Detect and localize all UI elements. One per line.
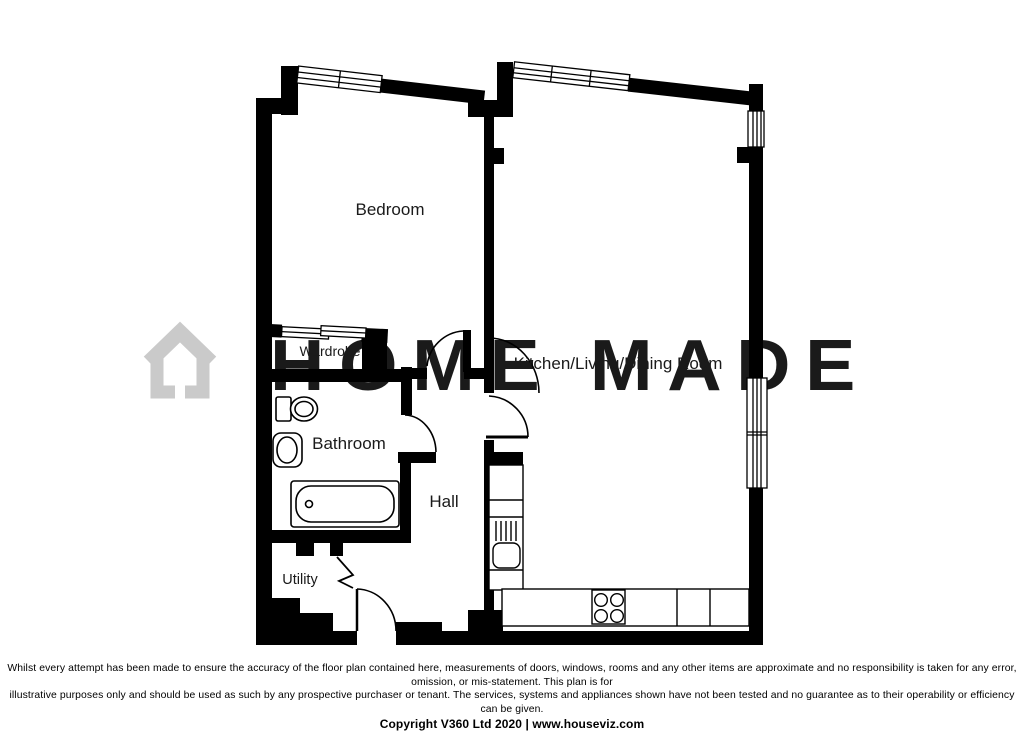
bathroom-fixtures — [273, 397, 399, 527]
wall-party — [484, 117, 494, 340]
floorplan-canvas: HOME MADE — [0, 0, 1024, 660]
utility-bifold-door — [337, 557, 353, 588]
room-label-bathroom: Bathroom — [312, 434, 386, 453]
bathtub-icon — [291, 481, 399, 527]
bathroom-door-arc — [405, 415, 436, 452]
windows — [282, 62, 767, 488]
bedroom-door-leaf — [463, 330, 471, 372]
wall-right — [749, 84, 763, 112]
kitchen-right-window-small — [748, 111, 764, 147]
floorplan-page: HOME MADE — [0, 0, 1024, 724]
room-label-hall: Hall — [429, 492, 458, 511]
room-label-bedroom: Bedroom — [356, 200, 425, 219]
room-label-kitchen: Kitchen/Living/Dining Room — [514, 354, 723, 373]
disclaimer-line-2: illustrative purposes only and should be… — [0, 689, 1024, 716]
disclaimer-line-1: Whilst every attempt has been made to en… — [0, 662, 1024, 689]
kitchen-top-window — [513, 62, 630, 91]
basin-icon — [273, 433, 302, 467]
footer-disclaimer: Whilst every attempt has been made to en… — [0, 662, 1024, 732]
bedroom-window — [297, 66, 382, 93]
kitchen-right-window-large — [747, 378, 767, 488]
kitchen-counter-left — [489, 465, 523, 590]
copyright-line: Copyright V360 Ltd 2020 | www.houseviz.c… — [0, 718, 1024, 732]
entrance-door-arc — [357, 589, 396, 631]
house-logo-icon — [149, 332, 211, 392]
room-label-wardrobe: Wardrobe — [300, 343, 361, 359]
kitchen-fittings — [489, 465, 749, 626]
hob-icon — [592, 590, 625, 624]
kitchen-sink-icon — [493, 543, 520, 568]
toilet-icon — [276, 397, 318, 421]
room-label-utility: Utility — [282, 572, 318, 588]
